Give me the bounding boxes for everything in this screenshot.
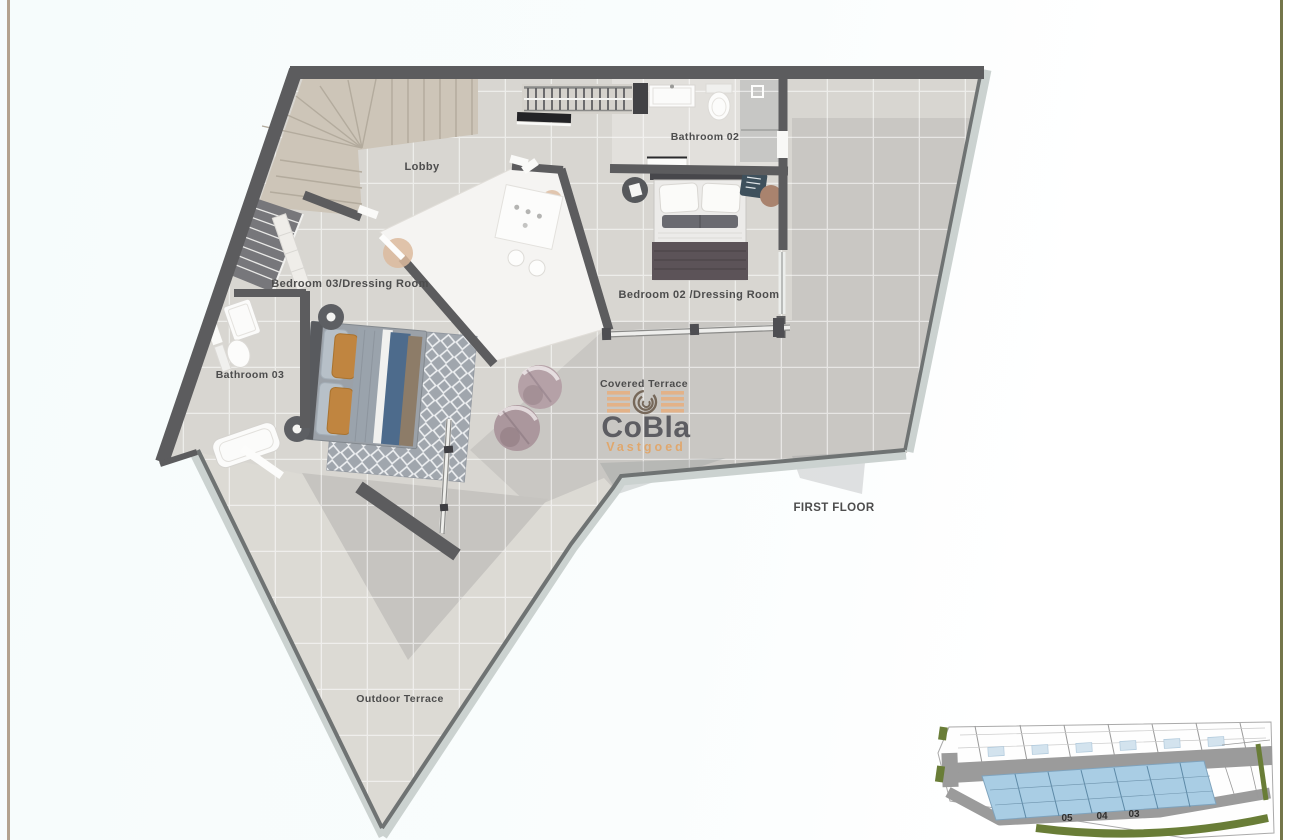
bathroom-02-door	[777, 131, 788, 158]
room-label-bathroom-03: Bathroom 03	[216, 369, 285, 381]
site-plan-inset: 05 04 03	[935, 722, 1274, 838]
room-label-covered-terrace: Covered Terrace	[600, 378, 688, 390]
nightstand	[622, 177, 648, 203]
kitchen-island	[495, 185, 563, 250]
floor-plan: Lobby Bathroom 02 Bedroom 02 /Dressing R…	[0, 0, 1290, 840]
room-label-outdoor-terrace: Outdoor Terrace	[356, 693, 444, 705]
room-label-bedroom-02: Bedroom 02 /Dressing Room	[619, 289, 780, 301]
stool	[529, 260, 545, 276]
unit-number-04: 04	[1096, 811, 1108, 822]
room-label-bathroom-02: Bathroom 02	[671, 131, 740, 143]
logo-tagline: Vastgoed	[606, 440, 686, 454]
nightstand	[318, 304, 344, 330]
unit-number-03: 03	[1128, 809, 1140, 820]
floor-title: FIRST FLOOR	[793, 502, 874, 514]
room-label-bedroom-03: Bedroom 03/Dressing Room	[271, 278, 429, 290]
stool	[508, 250, 524, 266]
unit-number-05: 05	[1061, 813, 1073, 824]
bed-03	[301, 321, 427, 449]
bed-blanket-02	[652, 242, 748, 280]
room-label-lobby: Lobby	[405, 161, 440, 173]
